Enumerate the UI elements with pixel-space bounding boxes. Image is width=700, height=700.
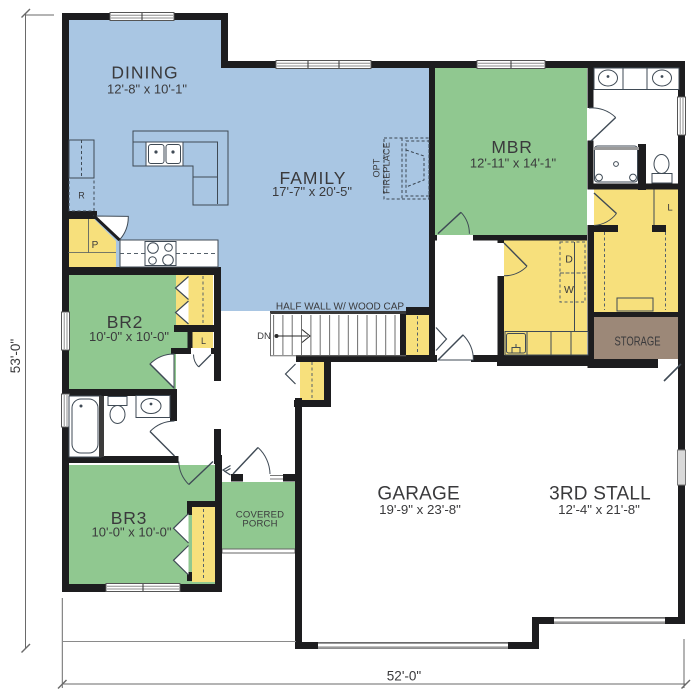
svg-text:PORCH: PORCH bbox=[242, 519, 277, 530]
svg-text:FIREPLACE: FIREPLACE bbox=[382, 142, 392, 194]
svg-text:DN: DN bbox=[257, 331, 271, 342]
svg-text:53'-0": 53'-0" bbox=[8, 339, 23, 374]
svg-text:OPT: OPT bbox=[372, 158, 382, 177]
svg-text:12'-8" x 10'-1": 12'-8" x 10'-1" bbox=[107, 82, 187, 97]
svg-text:17'-7" x 20'-5": 17'-7" x 20'-5" bbox=[272, 184, 352, 199]
svg-text:R: R bbox=[78, 191, 85, 201]
svg-text:19'-9" x 23'-8": 19'-9" x 23'-8" bbox=[379, 502, 461, 517]
svg-text:10'-0" x 10'-0": 10'-0" x 10'-0" bbox=[89, 329, 169, 344]
svg-text:L: L bbox=[667, 203, 672, 214]
svg-text:W: W bbox=[564, 284, 574, 296]
svg-text:D: D bbox=[565, 254, 573, 266]
svg-text:STORAGE: STORAGE bbox=[615, 334, 661, 349]
svg-text:L: L bbox=[201, 336, 206, 346]
svg-text:12'-4" x 21'-8": 12'-4" x 21'-8" bbox=[558, 502, 640, 517]
svg-text:MBR: MBR bbox=[491, 137, 532, 157]
svg-text:52'-0": 52'-0" bbox=[387, 669, 422, 684]
svg-text:HALF WALL W/ WOOD CAP: HALF WALL W/ WOOD CAP bbox=[276, 302, 404, 313]
svg-text:10'-0" x 10'-0": 10'-0" x 10'-0" bbox=[92, 525, 172, 540]
svg-text:12'-11" x 14'-1": 12'-11" x 14'-1" bbox=[470, 156, 557, 171]
svg-text:P: P bbox=[92, 240, 99, 251]
svg-text:DINING: DINING bbox=[111, 63, 178, 83]
